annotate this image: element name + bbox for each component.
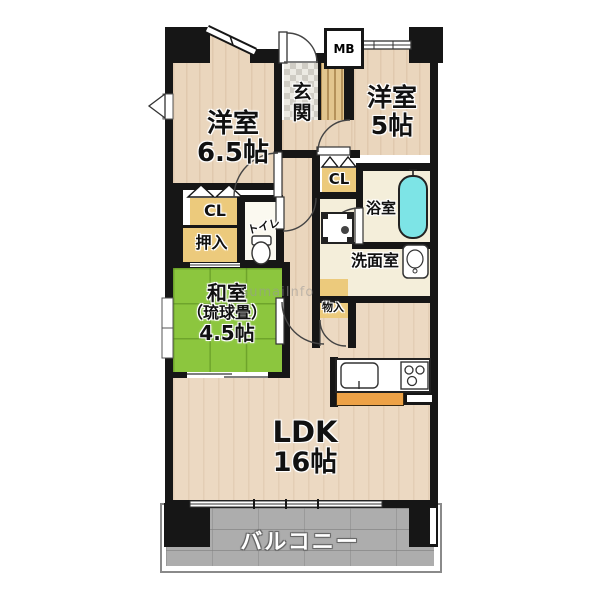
closet-right-label: CL (322, 171, 356, 188)
kitchen-pass-slot (407, 395, 432, 402)
room-size: 6.5帖 (178, 139, 288, 168)
window-western65 (149, 94, 173, 119)
room-size: 4.5帖 (177, 322, 277, 344)
room-label-western5: 洋室 5帖 (354, 84, 430, 140)
closet-left-label: CL (190, 202, 240, 220)
oshiire-fusuma (190, 263, 240, 267)
washroom-label: 洗面室 (330, 252, 420, 270)
door-western5 (317, 120, 350, 155)
bathroom-label: 浴室 (362, 200, 400, 217)
oshiire-label: 押入 (183, 234, 240, 252)
room-label-ldk: LDK 16帖 (255, 416, 355, 479)
entrance-door (279, 32, 318, 63)
closet-folding-doors-right (322, 157, 356, 167)
balcony-label: バルコニー (230, 524, 370, 556)
kitchen-counter (336, 359, 430, 392)
room-name: LDK (255, 416, 355, 448)
balcony-sliding-windows (190, 499, 382, 509)
window-western5 (356, 41, 411, 49)
corner-window (207, 29, 255, 52)
monoire-label: 物入 (317, 302, 349, 314)
door-monoire (320, 320, 346, 346)
room-size: 5帖 (354, 112, 430, 140)
watermark: SumaiInfo (240, 285, 314, 300)
meter-box: MB (324, 28, 364, 69)
window-japanese-room (162, 298, 173, 358)
room-label-entrance: 玄関 (290, 82, 314, 124)
room-name: 洋室 (178, 110, 288, 139)
room-size: 16帖 (255, 448, 355, 478)
floor-plan: 洋室 6.5帖 洋室 5帖 玄関 MB CL 押入 トイレ CL 浴室 洗面室 … (0, 0, 600, 600)
sliding-door-washitsu (187, 372, 268, 378)
washing-machine-pan (322, 213, 353, 243)
toilet-fixture (252, 236, 271, 264)
room-label-western65: 洋室 6.5帖 (178, 110, 288, 168)
bathtub (399, 170, 427, 238)
room-sub: （琉球畳） (177, 304, 277, 322)
room-name: 洋室 (354, 84, 430, 112)
